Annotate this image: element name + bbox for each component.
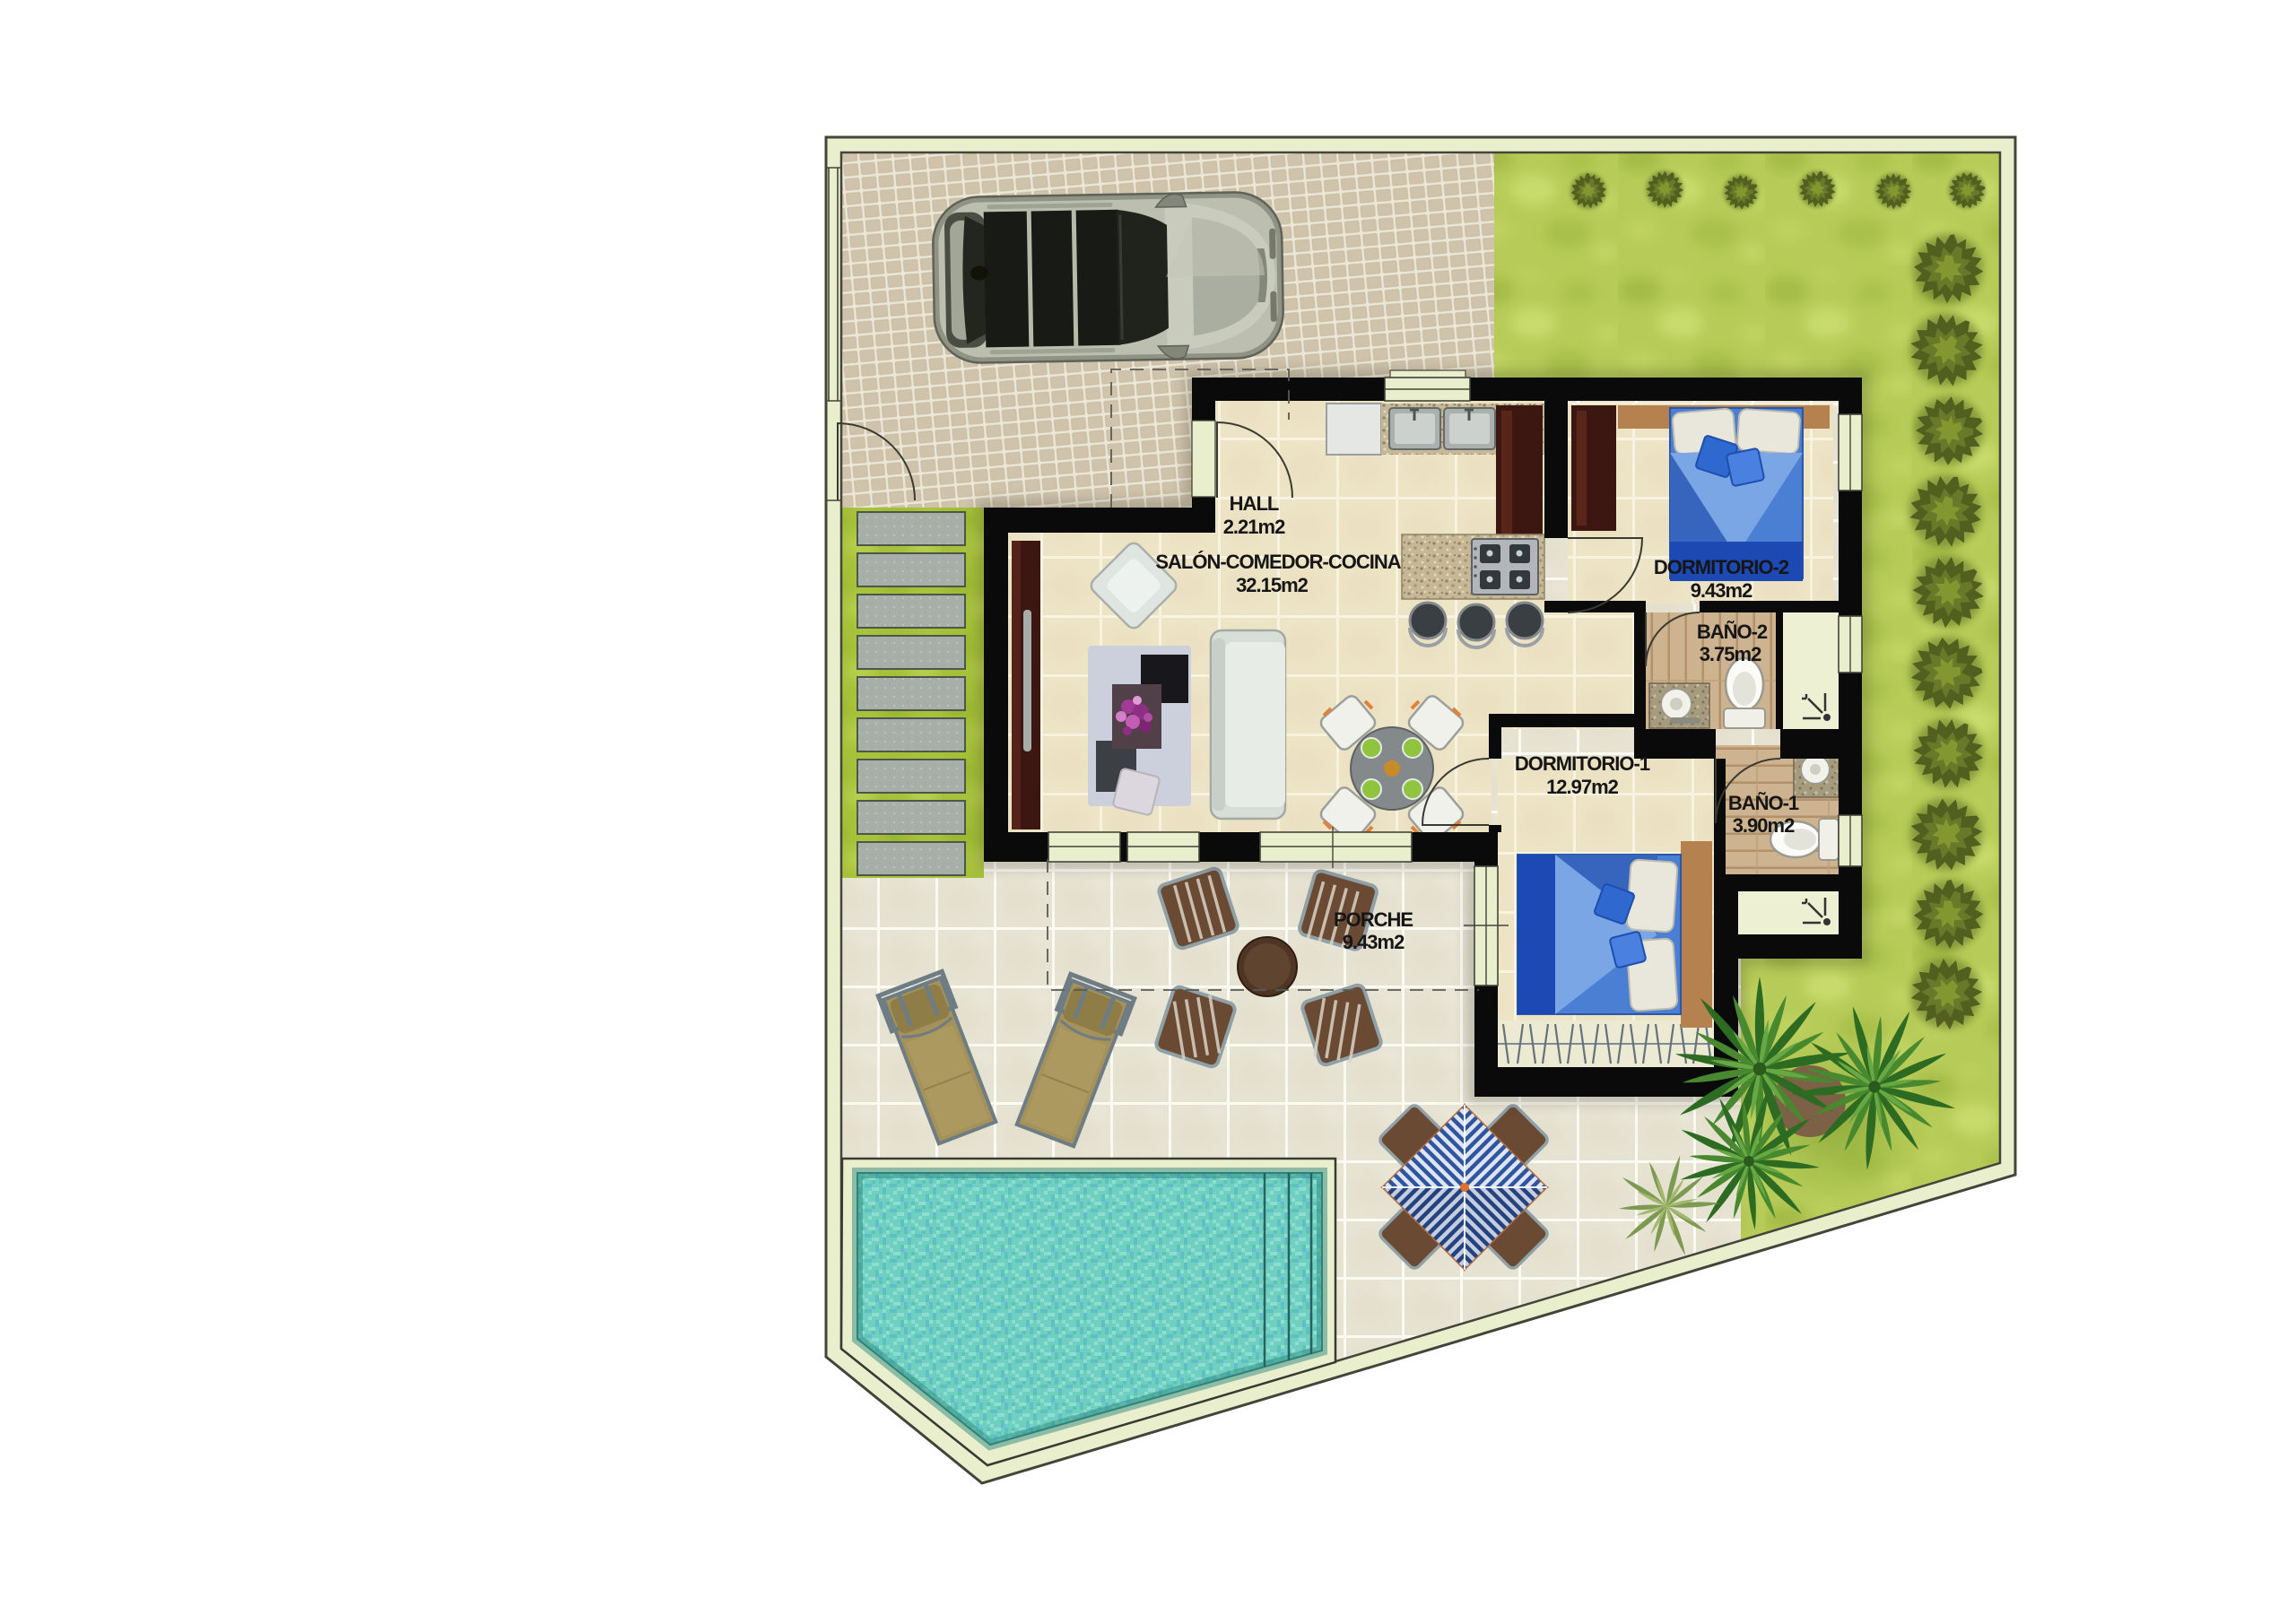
svg-text:3.90m2: 3.90m2 [1733, 814, 1795, 837]
svg-text:DORMITORIO-1: DORMITORIO-1 [1515, 752, 1650, 775]
svg-text:SALÓN-COMEDOR-COCINA: SALÓN-COMEDOR-COCINA [1155, 551, 1401, 573]
svg-text:12.97m2: 12.97m2 [1546, 776, 1619, 798]
svg-text:32.15m2: 32.15m2 [1236, 574, 1309, 596]
svg-text:2.21m2: 2.21m2 [1223, 516, 1285, 538]
svg-text:PORCHE: PORCHE [1334, 908, 1413, 931]
svg-text:HALL: HALL [1230, 492, 1279, 515]
svg-text:9.43m2: 9.43m2 [1691, 579, 1752, 602]
svg-text:DORMITORIO-2: DORMITORIO-2 [1654, 556, 1789, 578]
svg-text:BAÑO-1: BAÑO-1 [1728, 792, 1799, 814]
svg-text:3.75m2: 3.75m2 [1700, 643, 1761, 665]
svg-text:9.43m2: 9.43m2 [1343, 931, 1405, 953]
svg-text:BAÑO-2: BAÑO-2 [1697, 621, 1768, 643]
